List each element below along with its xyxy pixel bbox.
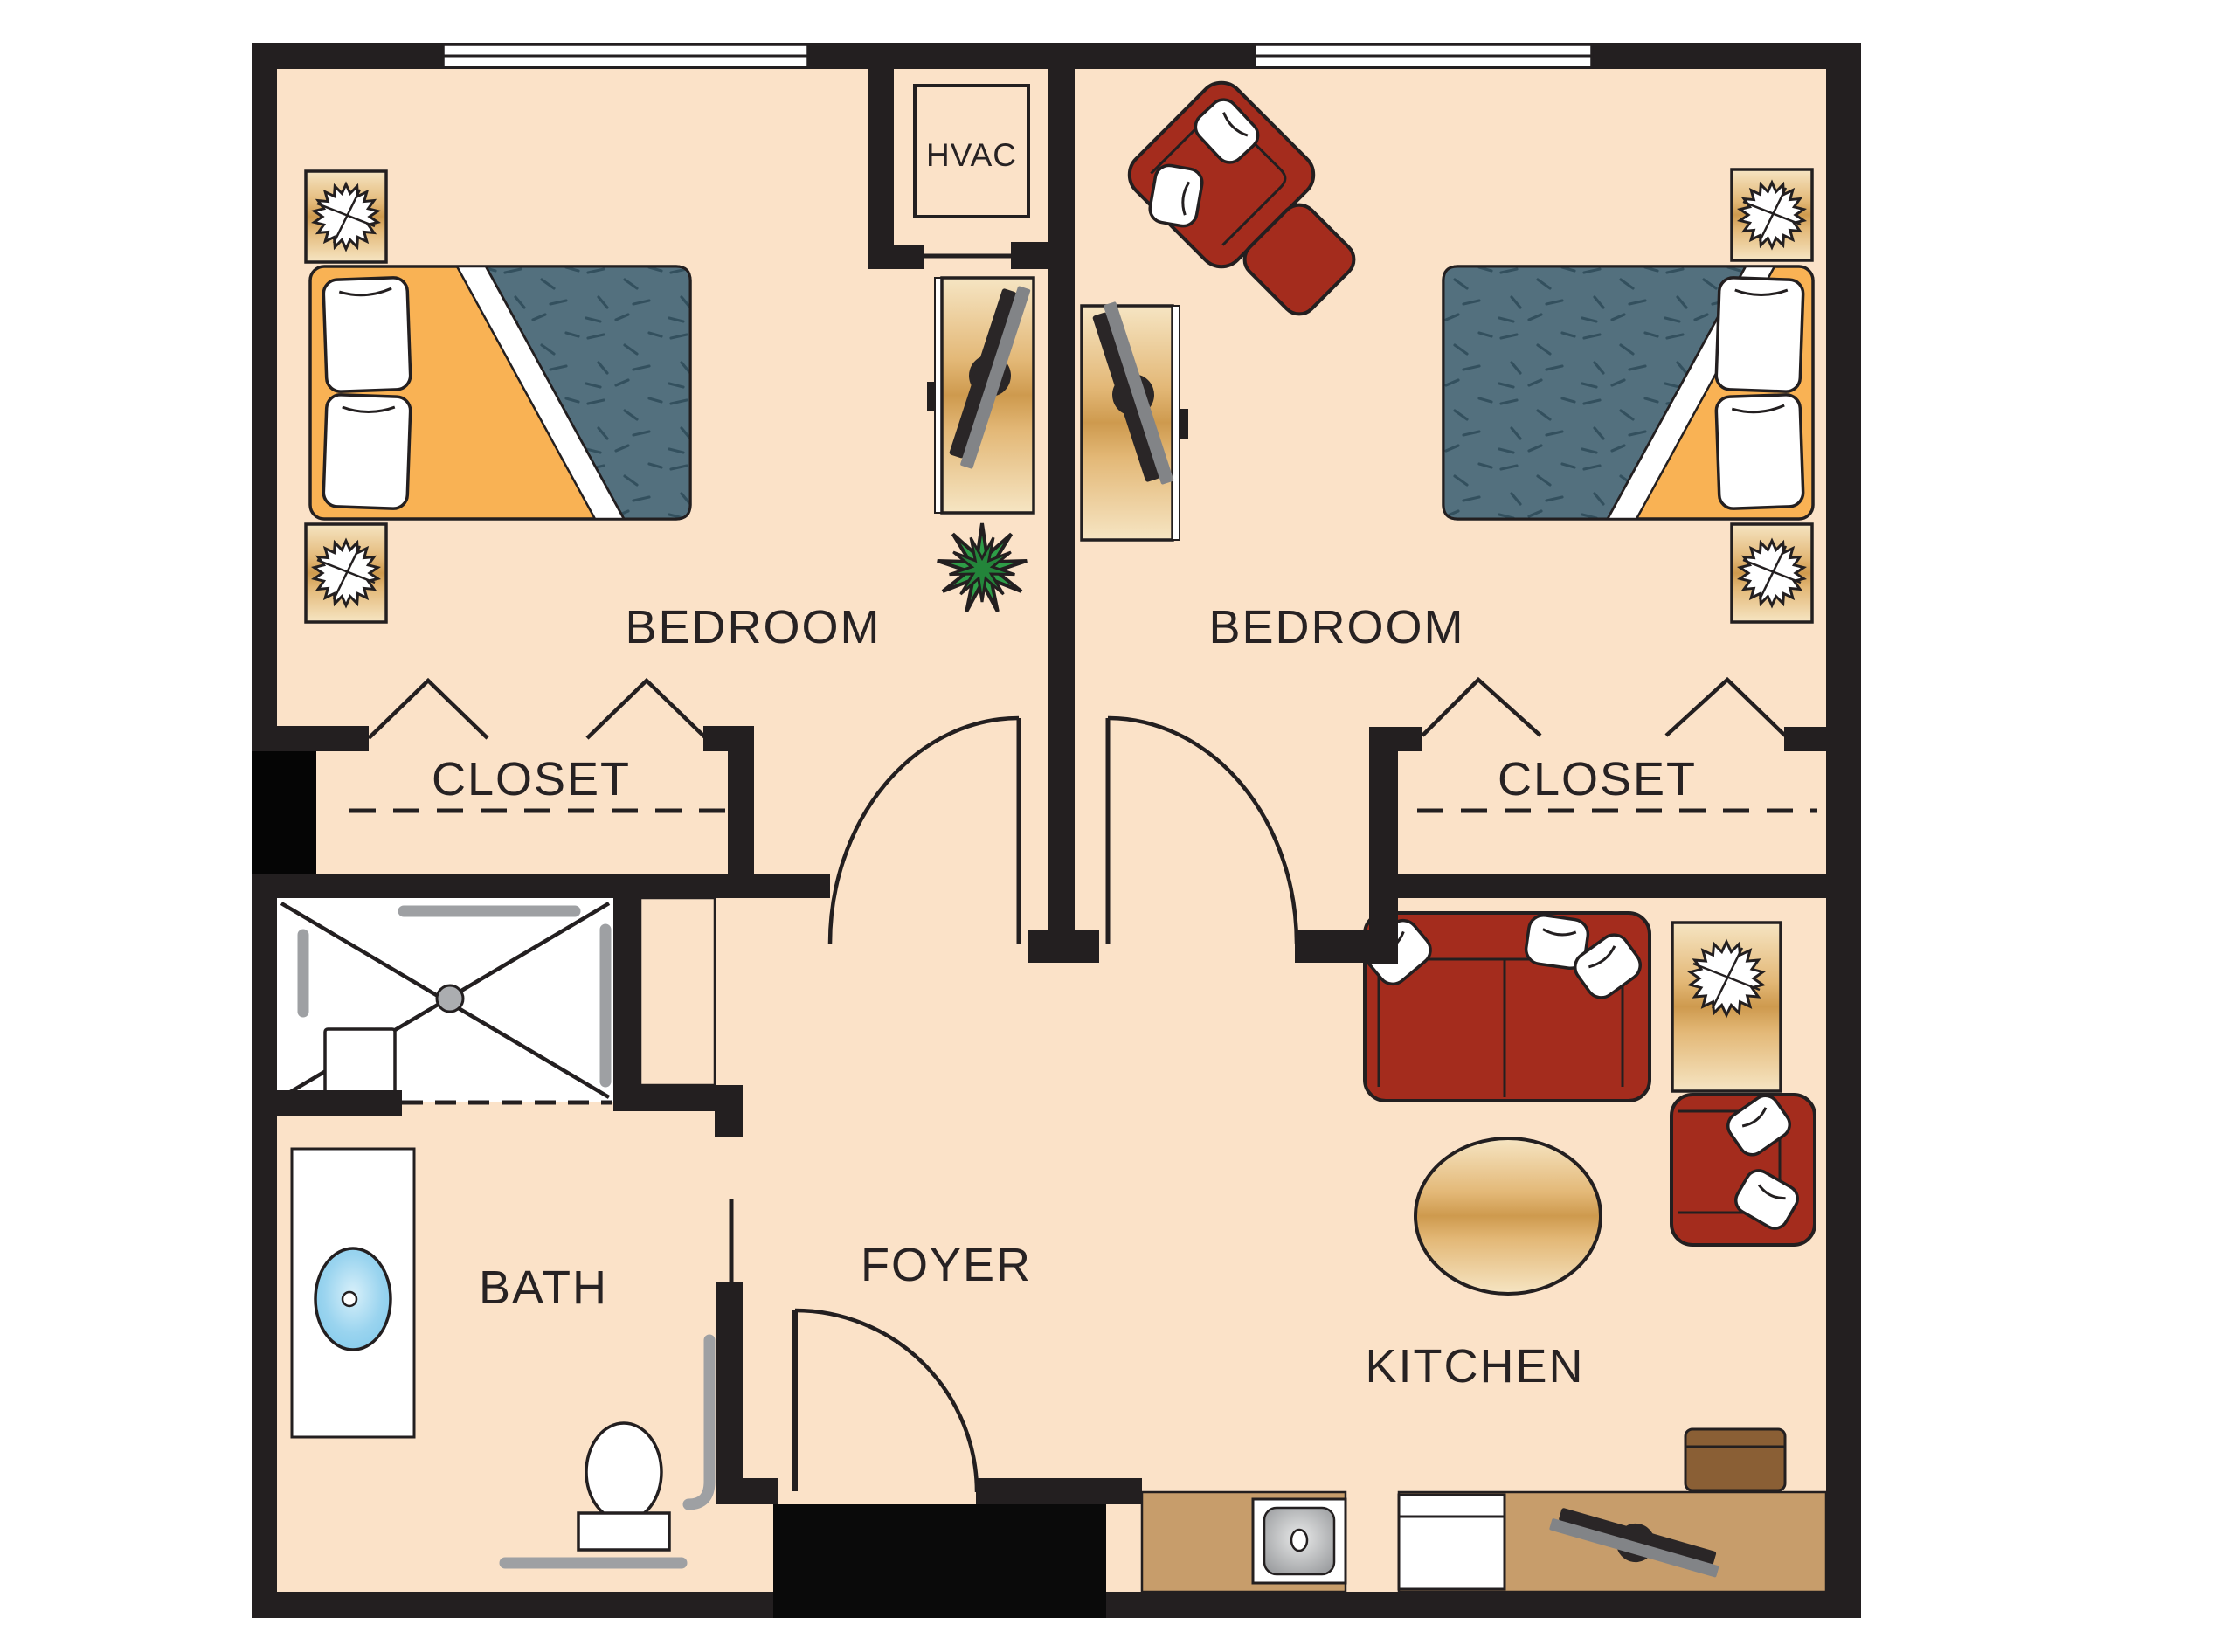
hvac-unit: HVAC [915,86,1028,217]
loveseat-sofa [1360,913,1650,1101]
oval-dining-table [1415,1138,1601,1294]
sink-drain [343,1292,356,1306]
vanity-sink [292,1149,414,1437]
foyer-label: FOYER [861,1239,1032,1291]
closet-left-label: CLOSET [432,753,631,805]
dishwasher [1399,1495,1505,1589]
nightstand-top-left [306,171,386,262]
bed-right [1443,266,1813,519]
closet-right-label: CLOSET [1498,753,1697,805]
bath-label: BATH [479,1261,608,1314]
bedroom-left-label: BEDROOM [625,601,881,653]
shower-seat [325,1029,395,1097]
armchair [1671,1090,1815,1245]
floor-plan-page: HVAC BEDROOM BEDROOM CLOSET CLOSET BATH … [0,0,2228,1652]
floor-plan: HVAC BEDROOM BEDROOM CLOSET CLOSET BATH … [0,0,2228,1652]
tv-stand-left [927,278,1039,513]
bedroom-right-label: BEDROOM [1208,601,1464,653]
storage-box [1685,1429,1785,1490]
kitchen-counter [1142,1492,1826,1592]
kitchen-label: KITCHEN [1365,1340,1584,1393]
kitchen-sink [1253,1499,1346,1583]
shower-drain [437,985,463,1012]
plumbing-chase [252,751,316,874]
nightstand-bottom-right [1732,524,1812,622]
pillow [1148,163,1205,228]
nightstand-top-right [1732,169,1812,260]
bed-left [310,266,690,519]
roll-in-shower [277,898,613,1102]
side-table [1672,923,1781,1091]
entry-vestibule [773,1504,1106,1618]
hvac-label: HVAC [926,137,1017,173]
nightstand-bottom-left [306,524,386,622]
tv-stand-right [1082,299,1188,540]
